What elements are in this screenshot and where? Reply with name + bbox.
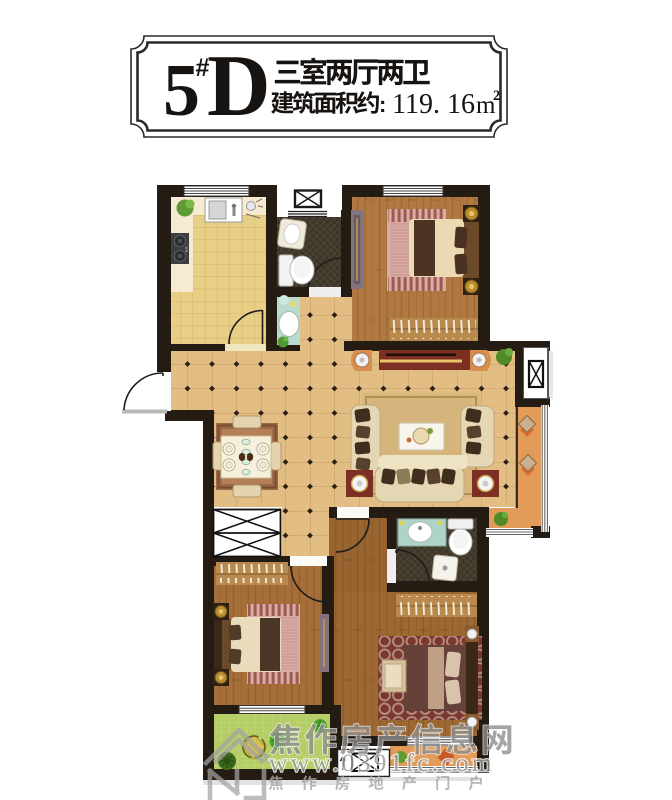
svg-text:5: 5 bbox=[163, 50, 200, 132]
svg-text:2: 2 bbox=[493, 88, 500, 104]
svg-text:119. 16: 119. 16 bbox=[392, 89, 475, 120]
svg-text:www.0391fc.com: www.0391fc.com bbox=[269, 748, 495, 777]
svg-text::: : bbox=[379, 92, 386, 117]
svg-text:D: D bbox=[207, 38, 271, 135]
